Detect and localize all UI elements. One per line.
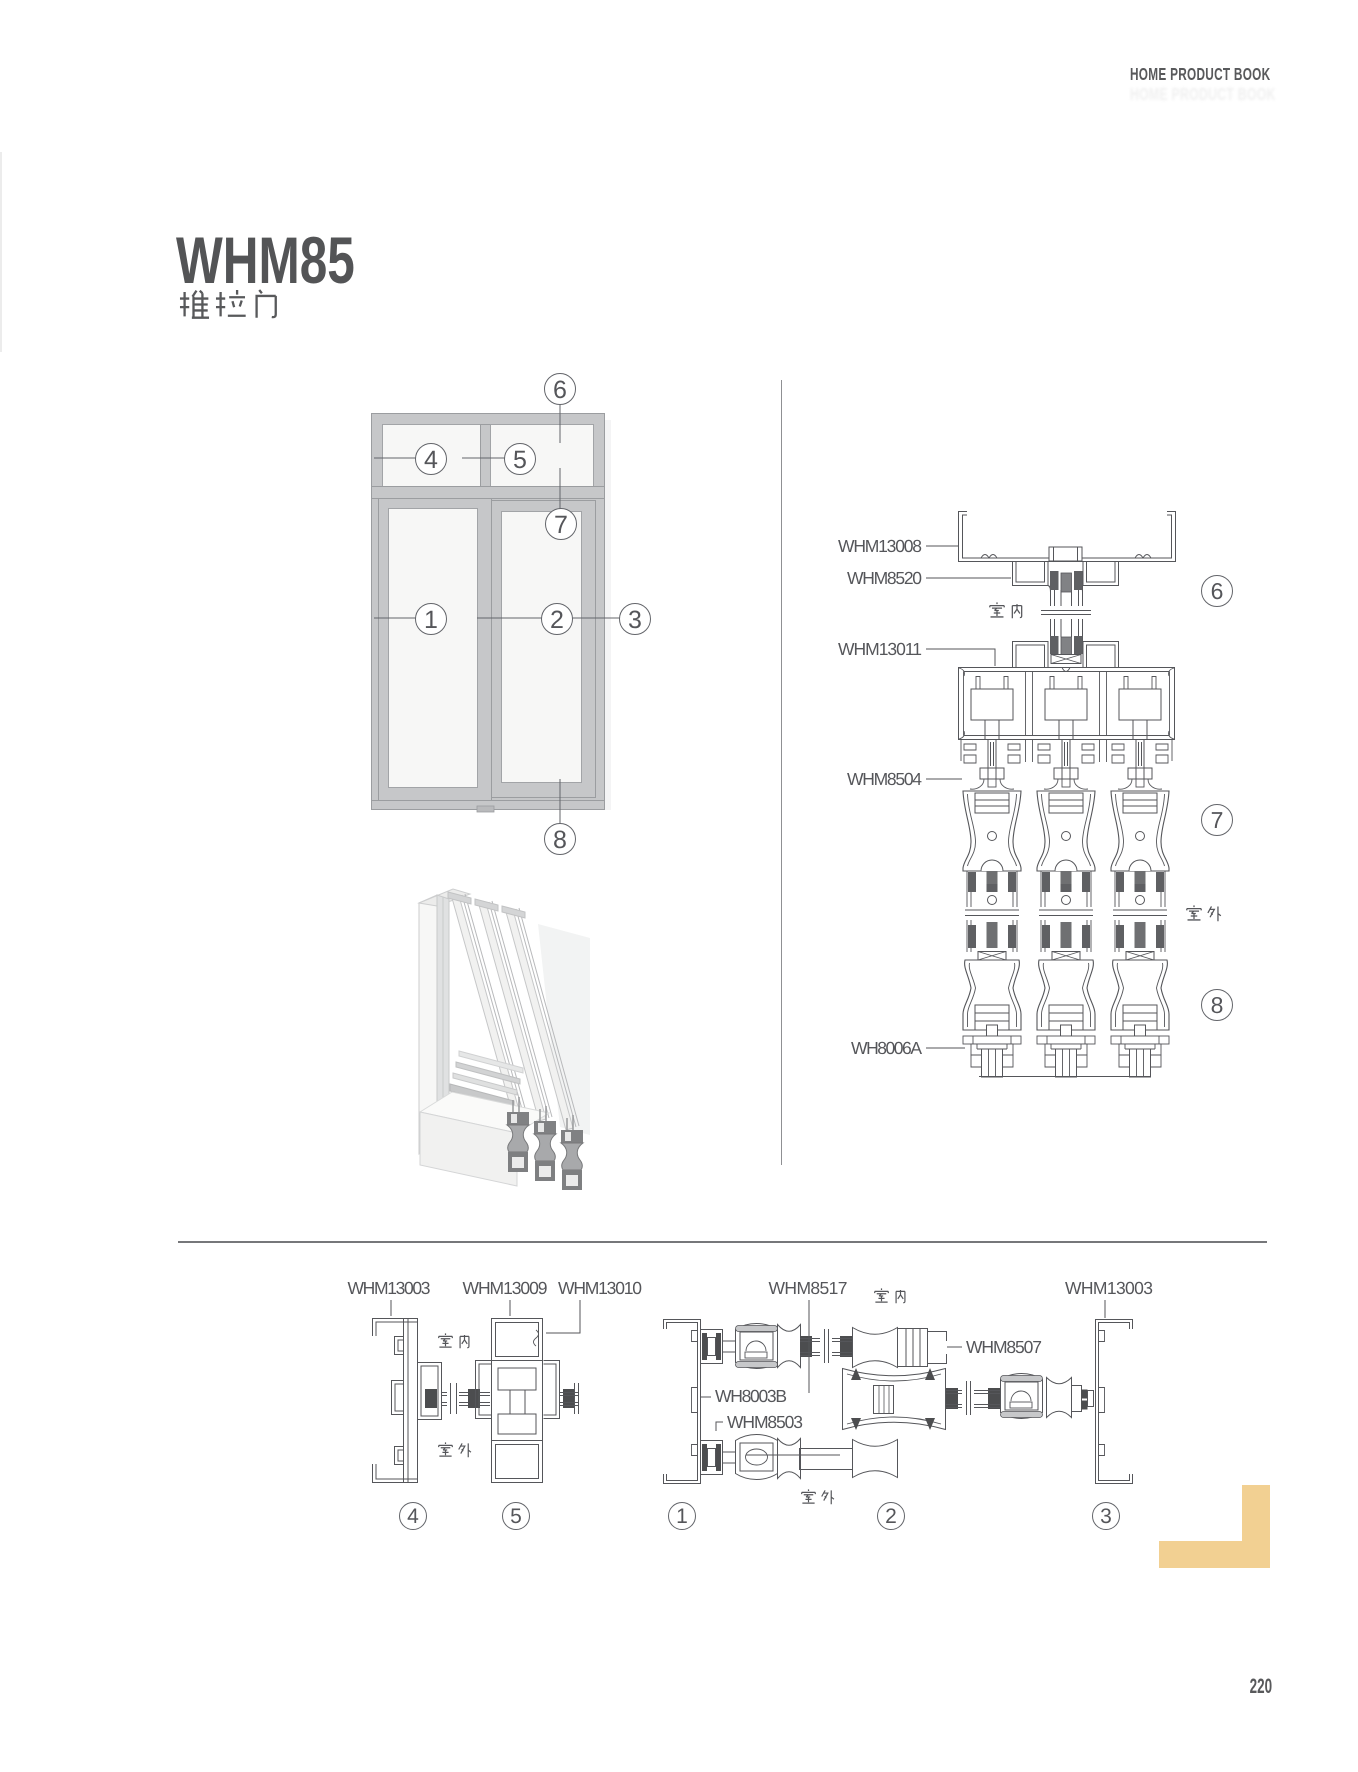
svg-text:4: 4 [424,446,438,474]
svg-text:3: 3 [628,606,642,634]
svg-text:2: 2 [885,1505,897,1528]
svg-text:WHM8507: WHM8507 [966,1337,1042,1357]
svg-text:5: 5 [513,446,527,474]
svg-text:6: 6 [553,376,567,404]
svg-text:WHM13003: WHM13003 [1065,1278,1153,1298]
svg-text:WHM13011: WHM13011 [838,639,922,659]
svg-text:WHM8520: WHM8520 [847,568,922,588]
svg-text:WHM8517: WHM8517 [769,1278,848,1298]
svg-text:WHM8503: WHM8503 [727,1412,803,1432]
svg-text:WHM8504: WHM8504 [847,769,922,789]
svg-text:WHM13008: WHM13008 [838,536,922,556]
svg-text:1: 1 [424,606,438,634]
svg-text:2: 2 [550,606,564,634]
svg-text:WH8006A: WH8006A [851,1038,922,1058]
svg-text:WH8003B: WH8003B [715,1386,787,1406]
svg-text:8: 8 [553,826,567,854]
svg-text:3: 3 [1100,1505,1112,1528]
svg-text:8: 8 [1211,992,1224,1018]
svg-text:WHM13003: WHM13003 [348,1278,431,1298]
svg-text:1: 1 [676,1505,688,1528]
svg-text:5: 5 [510,1505,522,1528]
svg-text:WHM13010: WHM13010 [558,1278,642,1298]
svg-text:6: 6 [1211,578,1224,604]
svg-text:7: 7 [1211,807,1224,833]
svg-text:7: 7 [554,511,568,539]
svg-text:4: 4 [407,1505,419,1528]
svg-text:WHM13009: WHM13009 [463,1278,548,1298]
